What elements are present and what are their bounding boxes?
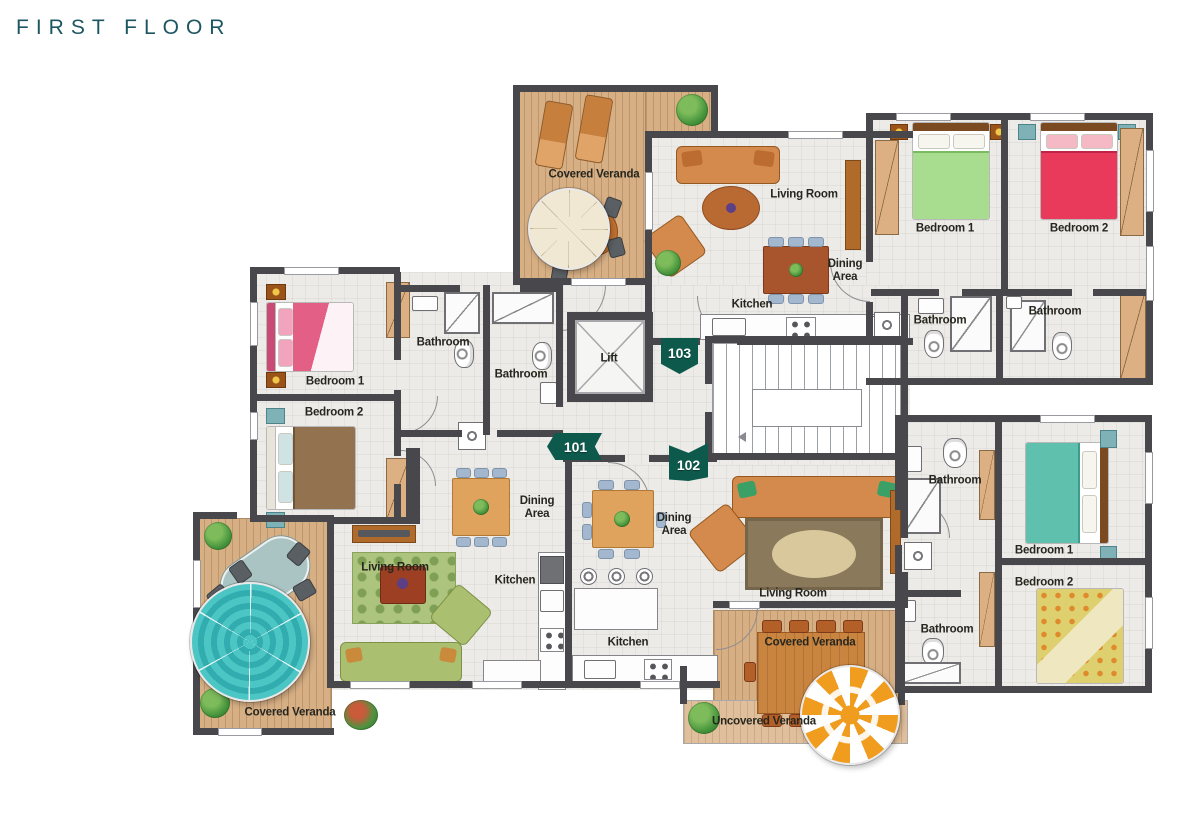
window [193,560,201,608]
dining-chair [492,468,507,478]
label-covered-veranda-top: Covered Veranda [549,169,640,182]
closet [1120,292,1146,380]
bed-pillow [953,134,985,149]
window [284,267,339,275]
bed-pillow [1046,134,1078,149]
stove-burners [786,317,816,338]
patio-chair [789,620,809,633]
wall-segment [705,453,908,460]
wall-segment [866,120,873,262]
plant [655,250,681,276]
window [350,681,410,689]
closet [979,450,995,520]
label-bedroom-1-103: Bedroom 1 [916,223,974,236]
bed-duvet [1037,589,1123,683]
unit-badge-101-number: 101 [564,439,587,455]
bed-pillow [278,433,293,465]
window [896,113,951,121]
label-kitchen-102: Kitchen [608,637,649,650]
toilet [943,438,967,468]
nightstand [266,408,285,424]
bed-floral [1036,588,1124,684]
dining-chair [598,480,614,490]
bed-headboard [267,303,276,371]
dining-chair [492,537,507,547]
bar-stool [608,568,625,585]
boiler [874,312,900,338]
dining-chair [768,237,784,247]
shower [444,292,480,334]
bed-headboard [267,427,276,509]
page-title: FIRST FLOOR [16,16,231,40]
kitchen-sink [712,318,746,336]
window [250,302,258,346]
wall-segment [394,390,401,456]
dining-chair [808,237,824,247]
dining-chair [456,537,471,547]
label-bathroom-102b: Bathroom [921,624,974,637]
dining-chair [474,468,489,478]
label-kitchen-103: Kitchen [732,299,773,312]
wall-segment [406,448,420,522]
bathroom-sink [1006,296,1022,309]
wall-segment [400,285,460,292]
dining-chair [624,549,640,559]
bathroom-sink [906,446,922,472]
plant [676,94,708,126]
bed-pillow [278,471,293,503]
wall-segment [1001,120,1008,296]
wall-segment [193,728,334,735]
window [1145,452,1153,504]
dining-chair [582,524,592,540]
bed-green [912,122,990,220]
window [472,681,522,689]
wall-segment [895,415,1152,422]
wall-segment [895,590,961,597]
window [1030,113,1085,121]
unit-badge-103-number: 103 [668,345,691,361]
tv [358,530,410,537]
wall-segment [250,515,334,522]
wall-segment [513,85,520,285]
wall-segment [901,460,908,538]
bed-pink [266,302,354,372]
bed-pillow [1082,451,1097,489]
window [1146,246,1154,301]
nightstand [266,284,286,300]
unit-badge-102-number: 102 [677,457,700,473]
dining-chair [598,549,614,559]
umbrella-cream [528,188,610,270]
wall-segment [513,278,571,285]
label-covered-veranda-left: Covered Veranda [245,707,336,720]
window [1040,415,1095,423]
bar-counter [574,588,658,630]
label-dining-area-102: Dining Area [650,512,698,538]
kitchen-sink [584,660,616,679]
wall-segment [483,285,490,435]
bathroom-sink [412,296,438,311]
bed-pillow [1081,134,1113,149]
window [729,601,760,609]
bed-pillow [918,134,950,149]
label-bedroom-1-101: Bedroom 1 [306,376,364,389]
wall-segment [895,686,1152,693]
wall-segment [705,336,712,384]
dining-chair [624,480,640,490]
wall-segment [497,430,563,437]
toilet [532,342,552,370]
wall-segment [193,512,237,519]
sofa-cushion [753,150,775,168]
bed-brown [266,426,356,510]
bathroom-sink [918,298,944,314]
wall-segment [1093,289,1152,296]
kitchen-sink [540,590,564,612]
stove-burners [540,628,564,652]
bed-teal [1025,442,1109,544]
wall-segment [901,343,908,453]
washing-machine [458,422,486,450]
window [1145,597,1153,649]
toilet [924,330,944,358]
wall-segment [513,85,718,92]
label-bathroom-103a: Bathroom [914,315,967,328]
wall-segment [895,415,902,510]
label-bedroom-2-101: Bedroom 2 [305,407,363,420]
dining-chair [788,294,804,304]
wall-segment [713,601,729,608]
wall-segment [962,289,1008,296]
toilet [1052,332,1072,360]
wall-segment [705,336,908,343]
bed-headboard [1100,443,1108,543]
sofa-cushion [439,647,457,664]
nightstand [266,372,286,388]
coffee-table-decor [397,578,408,589]
label-uncovered-veranda: Uncovered Veranda [712,716,816,729]
patio-chair [744,662,756,682]
floor-plan: FIRST FLOOR [0,0,1189,823]
label-bedroom-2-103: Bedroom 2 [1050,223,1108,236]
bed-headboard [1041,123,1117,131]
wall-segment [1002,558,1145,565]
window [250,412,258,440]
patio-chair [762,620,782,633]
window [788,131,843,139]
bed-duvet [1041,151,1117,219]
wall-segment [996,296,1003,382]
closet [979,572,995,647]
stair-landing [752,389,862,427]
bed-red [1040,122,1118,220]
wall-segment [871,289,939,296]
stair-direction-arrow [738,432,746,442]
dining-chair [808,294,824,304]
dining-chair [582,502,592,518]
label-bathroom-101a: Bathroom [417,337,470,350]
wall-segment [250,438,257,522]
nightstand [1100,430,1117,448]
label-living-room-102: Living Room [759,588,826,601]
unit-badge-101: 101 [547,433,602,460]
window [571,278,626,286]
bar-stool [636,568,653,585]
label-kitchen-101: Kitchen [495,575,536,588]
label-covered-veranda-bottom: Covered Veranda [765,637,856,650]
label-lift: Lift [600,353,617,366]
dining-chair [474,537,489,547]
wall-segment [645,131,652,345]
wall-segment [400,430,462,437]
bathroom-cabinet [540,382,557,404]
wall-segment [995,558,1002,690]
wall-segment [760,601,906,608]
window [218,728,262,736]
window [640,681,680,689]
window [645,172,653,230]
plant [614,511,630,527]
wall-segment [995,422,1002,562]
wall-segment [898,608,905,705]
label-dining-area-103: Dining Area [821,258,869,284]
bed-duvet [293,427,355,509]
bed-pillow [278,339,293,367]
label-bathroom-102a: Bathroom [929,475,982,488]
coffee-table-decor [726,203,736,213]
boiler [904,542,932,570]
stove-burners [644,659,672,680]
label-bathroom-101b: Bathroom [495,369,548,382]
plant [789,263,803,277]
wall-segment [1008,289,1072,296]
fridge [540,556,564,584]
wall-segment [680,666,687,704]
bed-pillow [278,308,293,336]
label-living-room-101: Living Room [361,562,428,575]
rug-oval [772,530,856,578]
closet [875,140,899,235]
wall-segment [866,378,1152,385]
wall-segment [565,455,572,688]
sofa-cushion [345,647,363,664]
label-bathroom-103b: Bathroom [1029,306,1082,319]
plant [204,522,232,550]
bar-stool [580,568,597,585]
closet [1120,128,1144,236]
bed-duvet [913,151,989,219]
bed-duvet [293,303,353,371]
wall-segment [327,515,334,688]
label-dining-area-101: Dining Area [513,495,561,521]
label-bedroom-2-102: Bedroom 2 [1015,577,1073,590]
sofa-cushion [681,150,703,168]
patio-chair [816,620,836,633]
nightstand [1018,124,1036,140]
wall-segment [334,517,420,524]
dining-chair [456,468,471,478]
bed-pillow [1082,495,1097,533]
shower [492,292,554,324]
plant [473,499,489,515]
label-bedroom-1-102: Bedroom 1 [1015,545,1073,558]
shower [903,662,961,684]
wall-segment [556,285,563,407]
window [1146,150,1154,212]
tv-cabinet [845,160,861,250]
plant [344,700,378,730]
label-living-room-103: Living Room [770,189,837,202]
umbrella-teal [190,582,310,702]
bed-headboard [913,123,989,131]
bed-duvet [1026,443,1080,543]
wall-segment [250,394,398,401]
dining-chair [788,237,804,247]
patio-chair [843,620,863,633]
